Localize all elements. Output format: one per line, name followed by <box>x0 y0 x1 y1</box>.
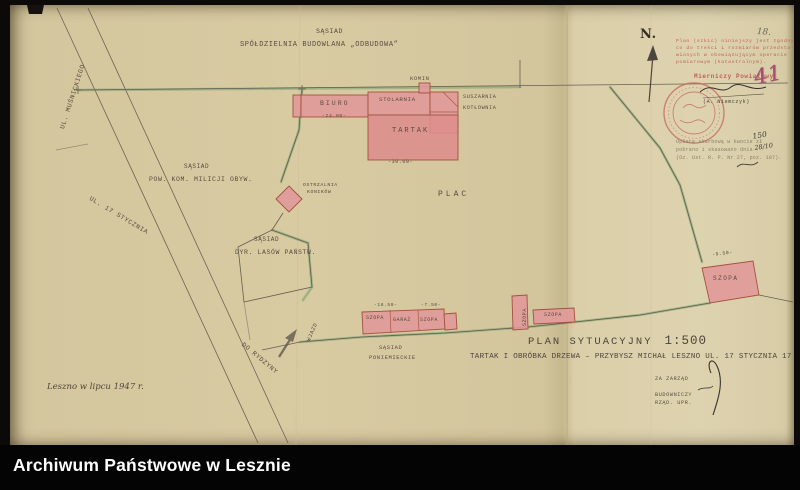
fee-stamp-line3: (Dz. Ust. R. P. Nr 27, poz. 107). <box>676 156 782 161</box>
neighbor-north-prefix: SĄSIAD <box>316 29 343 36</box>
archive-scan: SĄSIAD SPÓŁDZIELNIA BUDOWLANA „ODBUDOWA”… <box>0 0 800 490</box>
dim-sheds-row: -18.50- <box>374 304 398 309</box>
fee-initials-signature <box>737 162 758 167</box>
biuro-label: BIURO <box>320 101 350 108</box>
ostrzalnia-label-2: KONIKÓW <box>307 191 331 196</box>
building-tartak <box>368 115 458 160</box>
building-shed-small <box>444 313 457 330</box>
plan-title-scale: 1:500 <box>665 334 708 348</box>
stolarnia-label: STOLARNIA <box>379 97 416 103</box>
red-number: 41 <box>752 62 784 88</box>
suszarnia-label: SUSZARNIA <box>463 95 496 100</box>
szopa4-label: SZOPA <box>544 313 562 318</box>
fold-crease <box>296 6 300 445</box>
dim-sheds-row2: -7.50- <box>421 304 441 309</box>
surveyor-stamp-line: Plan (szkic) niniejszy jest zgodny <box>676 40 794 45</box>
pencil-number: 18. <box>756 28 771 38</box>
building-szopa5 <box>702 261 759 303</box>
date-note: Leszno w lipcu 1947 r. <box>47 383 144 392</box>
tartak-label: TARTAK <box>392 128 429 135</box>
szopa3-label: SZOPA <box>523 308 528 326</box>
archive-watermark-bar: Archiwum Państwowe w Lesznie <box>0 445 800 490</box>
dim-tartak: -30.00- <box>388 160 413 165</box>
ostrzalnia-label-1: OSTRZALNIA <box>303 184 338 189</box>
neighbor-southwest-prefix: SĄSIAD <box>254 237 279 243</box>
neighbor-north-name: SPÓŁDZIELNIA BUDOWLANA „ODBUDOWA” <box>240 42 398 49</box>
approval-signature <box>698 361 720 415</box>
street-lines <box>56 8 288 443</box>
approval-line1: ZA ZARZĄD <box>655 377 688 382</box>
szopa5-label: SZOPA <box>713 276 739 282</box>
szopa2-label: SZOPA <box>420 318 438 323</box>
fee-stamp-line1: Opłatę skarbową w kwocie zł <box>676 140 762 145</box>
plac-label: PLAC <box>438 191 469 199</box>
surveyor-name: (A. Niemczyk) <box>703 100 750 105</box>
archive-name: Archiwum Państwowe w Lesznie <box>13 455 291 476</box>
north-arrow-icon <box>647 45 658 102</box>
plan-title-label: PLAN SYTUACYJNY <box>528 336 653 348</box>
plan-title: PLAN SYTUACYJNY 1:500 <box>528 334 707 348</box>
dim-biuro: -24.00- <box>322 115 346 120</box>
surveyor-stamp-line: co do treści i rozmiarów przedsta- <box>676 47 794 52</box>
fee-stamp-line2: pobrano i skasowano dnia <box>676 148 753 153</box>
building-annex <box>293 95 301 117</box>
binding-mark <box>27 5 44 14</box>
neighbor-south-prefix: SĄSIAD <box>379 345 402 351</box>
surveyor-stamp-line: wionych w obowiązującym operacie <box>676 54 787 59</box>
approval-line2: BUDOWNICZY <box>655 393 692 398</box>
plan-drawing <box>0 0 800 490</box>
komin-label: KOMIN <box>410 76 430 82</box>
north-label: N. <box>640 28 657 41</box>
approval-line3: RZĄD. UPR. <box>655 401 692 406</box>
round-stamp-icon <box>664 83 724 143</box>
plan-subject: TARTAK I OBRÓBKA DRZEWA – PRZYBYSZ MICHA… <box>470 354 792 362</box>
garaz-label: GARAŻ <box>393 318 411 323</box>
neighbor-west-name: POW. KOM. MILICJI OBYW. <box>149 177 253 184</box>
neighbor-west-prefix: SĄSIAD <box>184 164 209 170</box>
building-komin <box>419 83 430 93</box>
szopa1-label: SZOPA <box>366 316 384 321</box>
neighbor-southwest-name: DYR. LASÓW PAŃSTW. <box>235 250 316 257</box>
neighbor-south-name: PONIEMIECKIE <box>369 355 416 361</box>
kotlownia-label: KOTŁOWNIA <box>463 106 496 111</box>
